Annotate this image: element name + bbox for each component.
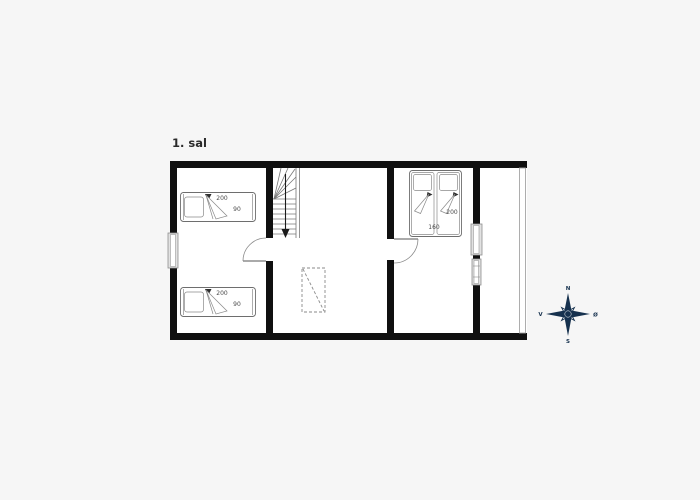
compass-north-label: N xyxy=(566,286,571,292)
bed-dim-label: 90 xyxy=(233,206,241,213)
wall-left-lower xyxy=(170,268,177,340)
compass-west-label: V xyxy=(538,312,543,318)
wall-3-lower xyxy=(473,285,480,333)
bed-dim-label: 90 xyxy=(233,301,241,308)
floor-plan-page: 1. sal xyxy=(0,0,700,500)
wall-top xyxy=(170,161,527,168)
wall-left-upper xyxy=(170,161,177,233)
compass-rose-icon xyxy=(546,293,590,336)
compass-south-label: S xyxy=(566,339,570,345)
wall-3-mid xyxy=(473,255,480,259)
bed-dim-label: 200 xyxy=(216,290,228,297)
glass-wall-right xyxy=(520,168,526,333)
floor-plan-drawing: 1. sal xyxy=(0,0,700,500)
window-inner-wall-lower xyxy=(472,259,481,285)
wall-1-upper xyxy=(266,168,273,238)
bed-dim-label: 200 xyxy=(216,195,228,202)
page-title: 1. sal xyxy=(172,136,207,150)
bed-dim-label: 200 xyxy=(446,209,458,216)
wall-bottom xyxy=(170,333,527,340)
wall-1-lower xyxy=(266,261,273,333)
wall-2-lower xyxy=(387,260,394,333)
window-inner-wall-upper xyxy=(471,224,482,255)
wall-2-upper xyxy=(387,168,394,239)
compass-east-label: Ø xyxy=(593,312,598,319)
bed-dim-label: 160 xyxy=(428,224,440,231)
wall-3-upper xyxy=(473,168,480,224)
window-left-wall xyxy=(168,233,178,268)
